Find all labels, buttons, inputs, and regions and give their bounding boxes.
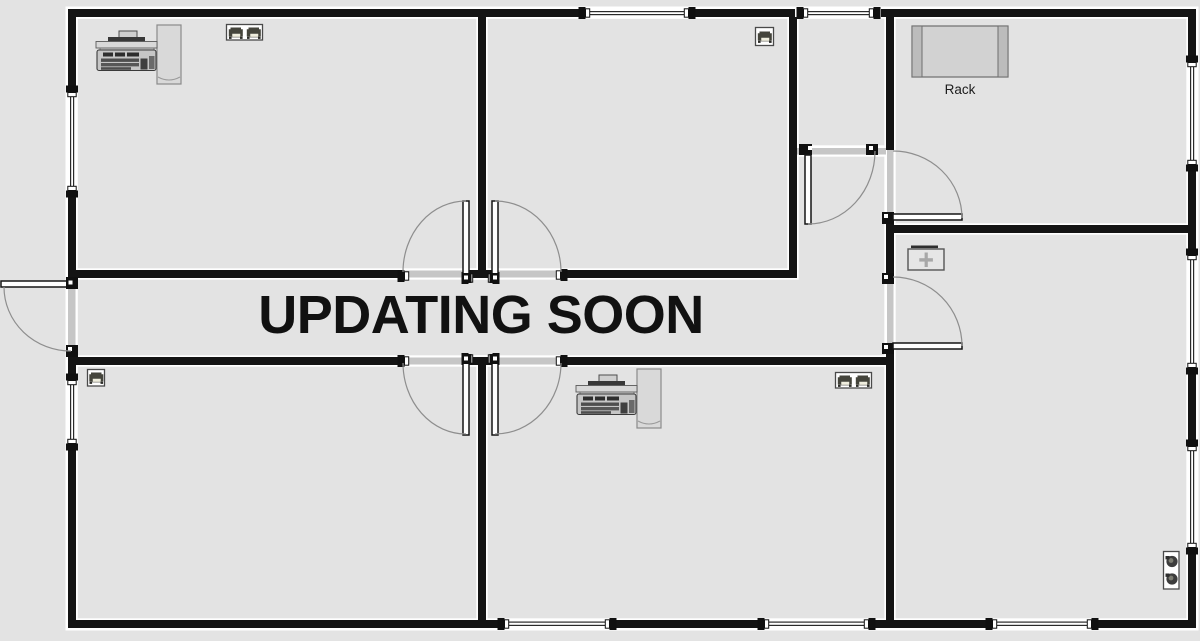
svg-text:Rack: Rack [945,82,976,97]
svg-text:UPDATING SOON: UPDATING SOON [258,285,704,345]
